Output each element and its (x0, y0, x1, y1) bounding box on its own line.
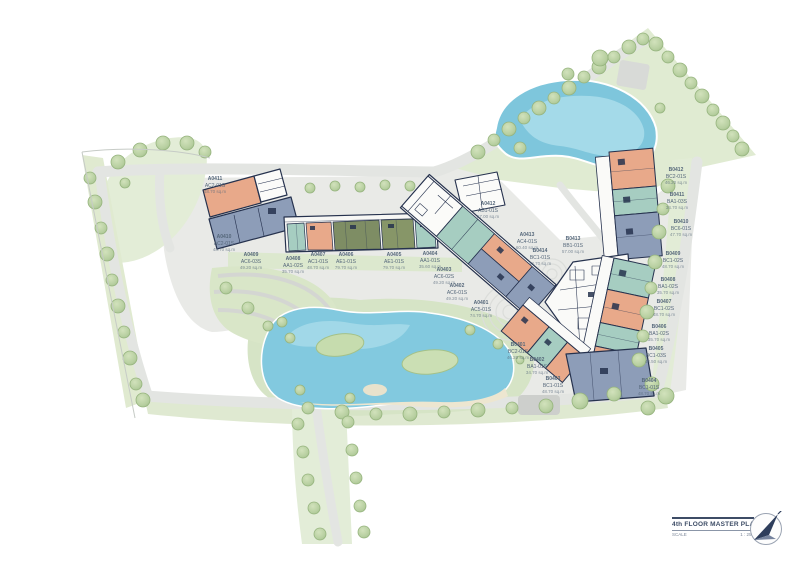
scale-row: SCALE 1 : 250 (672, 532, 754, 537)
master-plan-sheet: A0411AC2-01S48.70 sq.m A0410AC2-01S48.70… (0, 0, 800, 565)
site-plan-drawing (0, 0, 800, 565)
title-block: 4th FLOOR MASTER PLAN SCALE 1 : 250 (672, 517, 754, 537)
title-rule (672, 517, 754, 519)
title-rule-thin (672, 530, 754, 531)
north-arrow-icon (748, 511, 784, 547)
page-title: 4th FLOOR MASTER PLAN (672, 521, 754, 528)
scale-label: SCALE (672, 532, 687, 537)
pool-deck (616, 60, 650, 91)
